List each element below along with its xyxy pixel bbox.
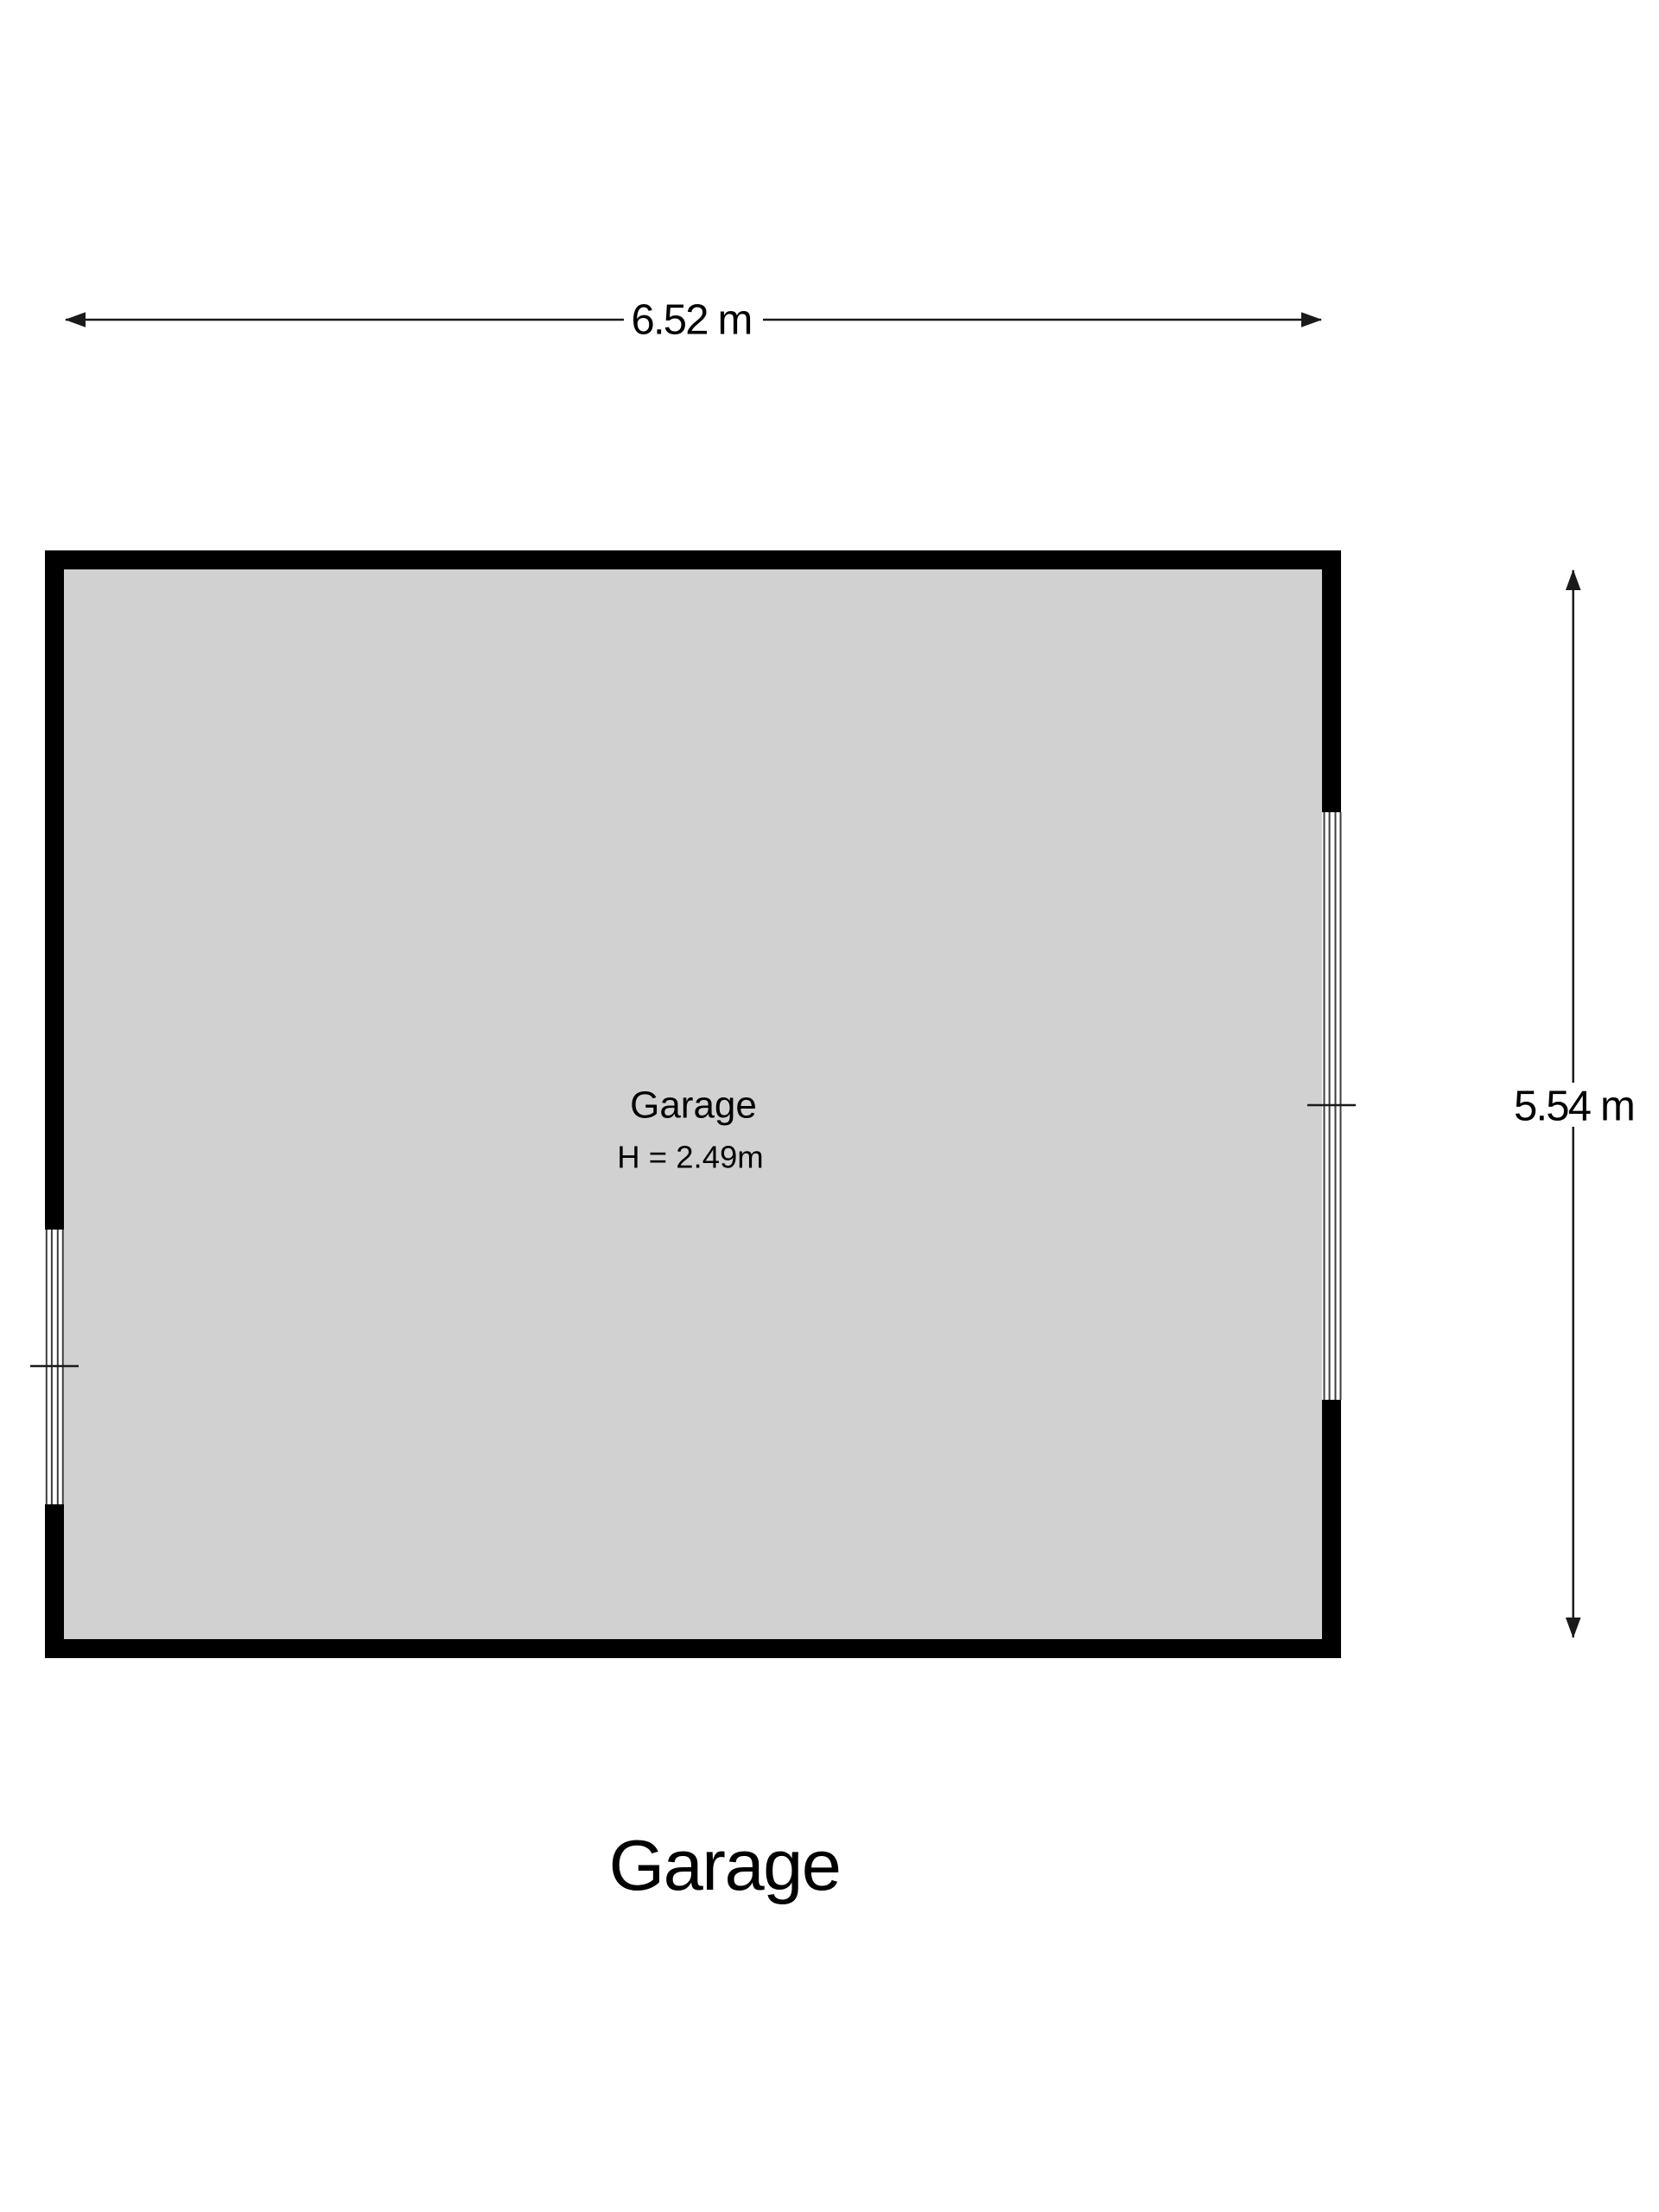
- svg-text:5.54 m: 5.54 m: [1514, 1084, 1634, 1130]
- svg-text:H = 2.49m: H = 2.49m: [617, 1140, 763, 1175]
- svg-text:6.52 m: 6.52 m: [632, 297, 752, 344]
- svg-text:Garage: Garage: [609, 1825, 841, 1905]
- svg-text:Garage: Garage: [630, 1084, 757, 1126]
